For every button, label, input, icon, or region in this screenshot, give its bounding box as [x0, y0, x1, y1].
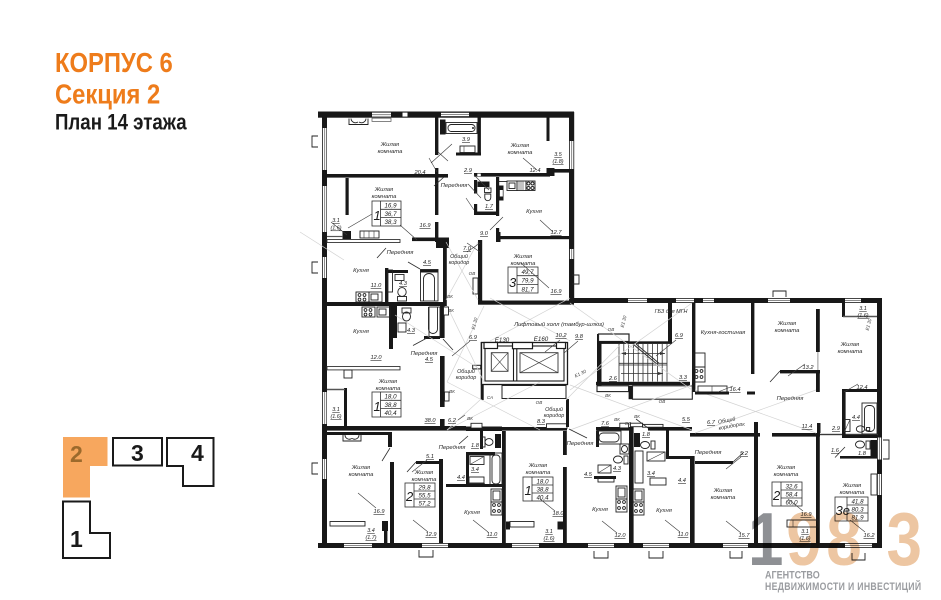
svg-text:1: 1 — [748, 497, 783, 581]
svg-text:ВК: ВК — [614, 417, 620, 422]
svg-text:(1.7): (1.7) — [365, 535, 376, 541]
svg-text:Кухня: Кухня — [353, 268, 370, 274]
svg-text:49,7: 49,7 — [521, 269, 534, 276]
svg-text:комната: комната — [774, 472, 799, 478]
svg-text:11.4: 11.4 — [802, 424, 813, 430]
svg-text:Лифтовый холл (тамбур-шлюз): Лифтовый холл (тамбур-шлюз) — [513, 321, 604, 328]
svg-text:4.3: 4.3 — [613, 466, 622, 472]
svg-text:4.5: 4.5 — [425, 357, 434, 363]
svg-text:9.8: 9.8 — [575, 334, 584, 340]
svg-text:3: 3 — [887, 497, 922, 581]
svg-text:1.8: 1.8 — [471, 443, 480, 449]
svg-text:40,4: 40,4 — [384, 410, 397, 417]
svg-text:Кухня: Кухня — [526, 209, 543, 215]
svg-text:2: 2 — [70, 441, 83, 467]
svg-text:2.9: 2.9 — [463, 168, 473, 174]
svg-text:Общий: Общий — [450, 253, 468, 260]
svg-text:комната: комната — [376, 386, 401, 392]
svg-text:Кухня: Кухня — [656, 508, 673, 514]
svg-text:ВК: ВК — [739, 422, 745, 427]
svg-text:комната: комната — [508, 150, 533, 156]
svg-text:4.5: 4.5 — [423, 260, 432, 266]
svg-text:32,6: 32,6 — [785, 484, 798, 491]
svg-text:Жилая: Жилая — [840, 342, 860, 348]
svg-text:Жилая: Жилая — [713, 488, 733, 494]
svg-text:ВК: ВК — [449, 389, 455, 394]
svg-text:12.0: 12.0 — [370, 355, 382, 361]
svg-text:(1.8): (1.8) — [552, 159, 563, 165]
svg-text:38,8: 38,8 — [536, 487, 549, 494]
svg-text:Передняя: Передняя — [439, 445, 467, 451]
svg-text:1.8: 1.8 — [858, 451, 867, 457]
svg-text:5.2: 5.2 — [740, 451, 749, 457]
svg-text:29,8: 29,8 — [417, 485, 431, 492]
svg-text:16.9: 16.9 — [550, 289, 562, 295]
svg-text:Общий: Общий — [457, 368, 475, 375]
svg-text:16.2: 16.2 — [863, 533, 875, 539]
svg-text:6.2: 6.2 — [448, 418, 457, 424]
svg-text:Жилая: Жилая — [414, 470, 434, 476]
svg-text:4.3: 4.3 — [407, 328, 416, 334]
svg-text:38,8: 38,8 — [384, 402, 397, 409]
svg-text:11.0: 11.0 — [487, 532, 498, 538]
svg-text:комната: комната — [412, 477, 437, 483]
svg-text:10.2: 10.2 — [555, 333, 567, 339]
svg-text:16.9: 16.9 — [373, 509, 385, 515]
svg-text:Кухня: Кухня — [464, 510, 481, 516]
svg-text:План 14 этажа: План 14 этажа — [55, 111, 187, 135]
svg-text:Жилая: Жилая — [842, 483, 862, 489]
svg-text:7.0: 7.0 — [463, 246, 472, 252]
svg-text:9.0: 9.0 — [480, 231, 489, 237]
svg-text:Передняя: Передняя — [567, 441, 595, 447]
svg-text:7.6: 7.6 — [601, 421, 610, 427]
svg-text:4.3: 4.3 — [399, 281, 408, 287]
svg-text:1.7: 1.7 — [485, 204, 494, 210]
svg-text:2.9: 2.9 — [831, 426, 841, 432]
svg-text:Е160: Е160 — [534, 336, 549, 343]
svg-text:3.1: 3.1 — [545, 529, 553, 535]
svg-text:1.6: 1.6 — [831, 448, 840, 454]
svg-text:11.0: 11.0 — [678, 532, 689, 538]
svg-text:Передняя: Передняя — [387, 250, 415, 256]
svg-text:Жилая: Жилая — [513, 254, 533, 260]
svg-text:1: 1 — [374, 399, 381, 414]
svg-text:НЕДВИЖИМОСТИ И ИНВЕСТИЦИЙ: НЕДВИЖИМОСТИ И ИНВЕСТИЦИЙ — [765, 580, 921, 593]
svg-text:2.6: 2.6 — [608, 376, 618, 382]
svg-text:20.4: 20.4 — [413, 170, 425, 176]
svg-text:3: 3 — [509, 275, 517, 290]
svg-text:комната: комната — [372, 194, 397, 200]
svg-text:12.9: 12.9 — [425, 532, 437, 538]
svg-text:Жилая: Жилая — [380, 142, 400, 148]
svg-text:55,5: 55,5 — [418, 493, 431, 500]
svg-text:комната: комната — [775, 328, 800, 334]
svg-text:Секция 2: Секция 2 — [55, 78, 160, 110]
svg-text:3.3: 3.3 — [679, 375, 688, 381]
svg-text:(1.6): (1.6) — [543, 536, 554, 542]
svg-text:11.0: 11.0 — [371, 283, 382, 289]
svg-text:Жилая: Жилая — [528, 463, 548, 469]
svg-text:КОРПУС 6: КОРПУС 6 — [55, 46, 173, 78]
svg-text:Кухня: Кухня — [353, 329, 370, 335]
svg-text:6.9: 6.9 — [675, 333, 684, 339]
svg-text:3.4: 3.4 — [647, 471, 655, 477]
svg-text:18.0: 18.0 — [552, 511, 564, 517]
svg-text:Жилая: Жилая — [777, 321, 797, 327]
svg-text:3.4: 3.4 — [367, 528, 375, 534]
svg-text:3.1: 3.1 — [332, 407, 340, 413]
svg-text:1: 1 — [374, 208, 381, 223]
svg-text:2: 2 — [405, 489, 414, 504]
svg-text:4.5: 4.5 — [584, 472, 593, 478]
svg-text:12.4: 12.4 — [856, 385, 867, 391]
svg-text:Кухня: Кухня — [592, 507, 609, 513]
svg-text:комната: комната — [711, 495, 736, 501]
svg-text:ОВ: ОВ — [536, 400, 543, 405]
svg-text:16.9: 16.9 — [419, 223, 431, 229]
svg-text:16,9: 16,9 — [384, 203, 397, 210]
svg-text:3: 3 — [131, 440, 144, 466]
svg-text:6.9: 6.9 — [469, 335, 478, 341]
svg-text:36,7: 36,7 — [384, 211, 397, 218]
svg-text:Жилая: Жилая — [374, 187, 394, 193]
svg-text:Передняя: Передняя — [695, 450, 723, 456]
svg-text:ГБЗ для МГН: ГБЗ для МГН — [655, 309, 688, 315]
svg-text:СА: СА — [487, 395, 493, 400]
svg-text:Общий: Общий — [545, 406, 563, 413]
svg-text:комната: комната — [511, 261, 536, 267]
svg-text:комната: комната — [378, 149, 403, 155]
svg-text:5.5: 5.5 — [682, 417, 691, 423]
svg-text:ВК: ВК — [448, 308, 454, 313]
svg-text:16.4: 16.4 — [729, 387, 740, 393]
svg-text:1: 1 — [70, 526, 83, 552]
svg-text:ВК: ВК — [634, 414, 640, 419]
svg-text:1.8: 1.8 — [642, 432, 651, 438]
svg-text:3.1: 3.1 — [859, 306, 867, 312]
svg-text:Жилая: Жилая — [776, 465, 796, 471]
svg-text:ВК: ВК — [467, 416, 473, 421]
svg-text:4.4: 4.4 — [457, 475, 465, 481]
svg-text:Передняя: Передняя — [441, 183, 469, 189]
svg-text:8.3: 8.3 — [537, 419, 546, 425]
svg-text:ОВ: ОВ — [469, 271, 476, 276]
svg-text:38,3: 38,3 — [384, 219, 397, 226]
svg-text:Жилая: Жилая — [510, 143, 530, 149]
svg-text:6.7: 6.7 — [707, 420, 716, 426]
svg-text:ОВ: ОВ — [608, 327, 615, 332]
svg-text:АГЕНТСТВО: АГЕНТСТВО — [765, 570, 820, 582]
svg-text:ВК: ВК — [447, 294, 453, 299]
svg-text:3.1: 3.1 — [332, 218, 340, 224]
svg-text:(1.6): (1.6) — [330, 414, 341, 420]
svg-text:Жилая: Жилая — [351, 465, 371, 471]
svg-text:3.4: 3.4 — [471, 467, 479, 473]
svg-text:комната: комната — [840, 490, 865, 496]
svg-text:38.0: 38.0 — [424, 418, 436, 424]
svg-text:12.0: 12.0 — [614, 533, 626, 539]
svg-text:8: 8 — [826, 497, 861, 581]
svg-text:ОВ: ОВ — [659, 399, 666, 404]
svg-text:18,0: 18,0 — [384, 394, 397, 401]
svg-text:Жилая: Жилая — [378, 379, 398, 385]
svg-text:1: 1 — [525, 483, 532, 498]
svg-text:ОВ: ОВ — [625, 421, 632, 426]
svg-text:4.4: 4.4 — [852, 415, 860, 421]
svg-text:коридор: коридор — [544, 413, 565, 419]
svg-text:13.2: 13.2 — [802, 365, 814, 371]
svg-text:комната: комната — [349, 472, 374, 478]
svg-text:3.9: 3.9 — [462, 137, 471, 143]
svg-text:40,4: 40,4 — [536, 495, 549, 502]
svg-text:57,2: 57,2 — [418, 501, 431, 508]
svg-text:3.5: 3.5 — [554, 152, 562, 158]
svg-text:81,7: 81,7 — [521, 286, 534, 293]
svg-text:4.4: 4.4 — [678, 478, 686, 484]
svg-text:ВК: ВК — [605, 393, 611, 398]
svg-text:9: 9 — [786, 497, 821, 581]
svg-text:Передняя: Передняя — [777, 396, 805, 402]
svg-text:комната: комната — [838, 349, 863, 355]
svg-text:Кухня-гостиная: Кухня-гостиная — [701, 330, 746, 336]
svg-text:12.4: 12.4 — [529, 168, 540, 174]
svg-text:79,9: 79,9 — [521, 278, 534, 285]
svg-text:18,0: 18,0 — [536, 479, 549, 486]
svg-text:4: 4 — [191, 440, 204, 466]
svg-text:коридор: коридор — [456, 375, 477, 381]
svg-text:Е130: Е130 — [495, 337, 510, 344]
svg-text:коридор: коридор — [449, 260, 470, 266]
svg-text:5.1: 5.1 — [426, 454, 434, 460]
svg-text:комната: комната — [526, 470, 551, 476]
